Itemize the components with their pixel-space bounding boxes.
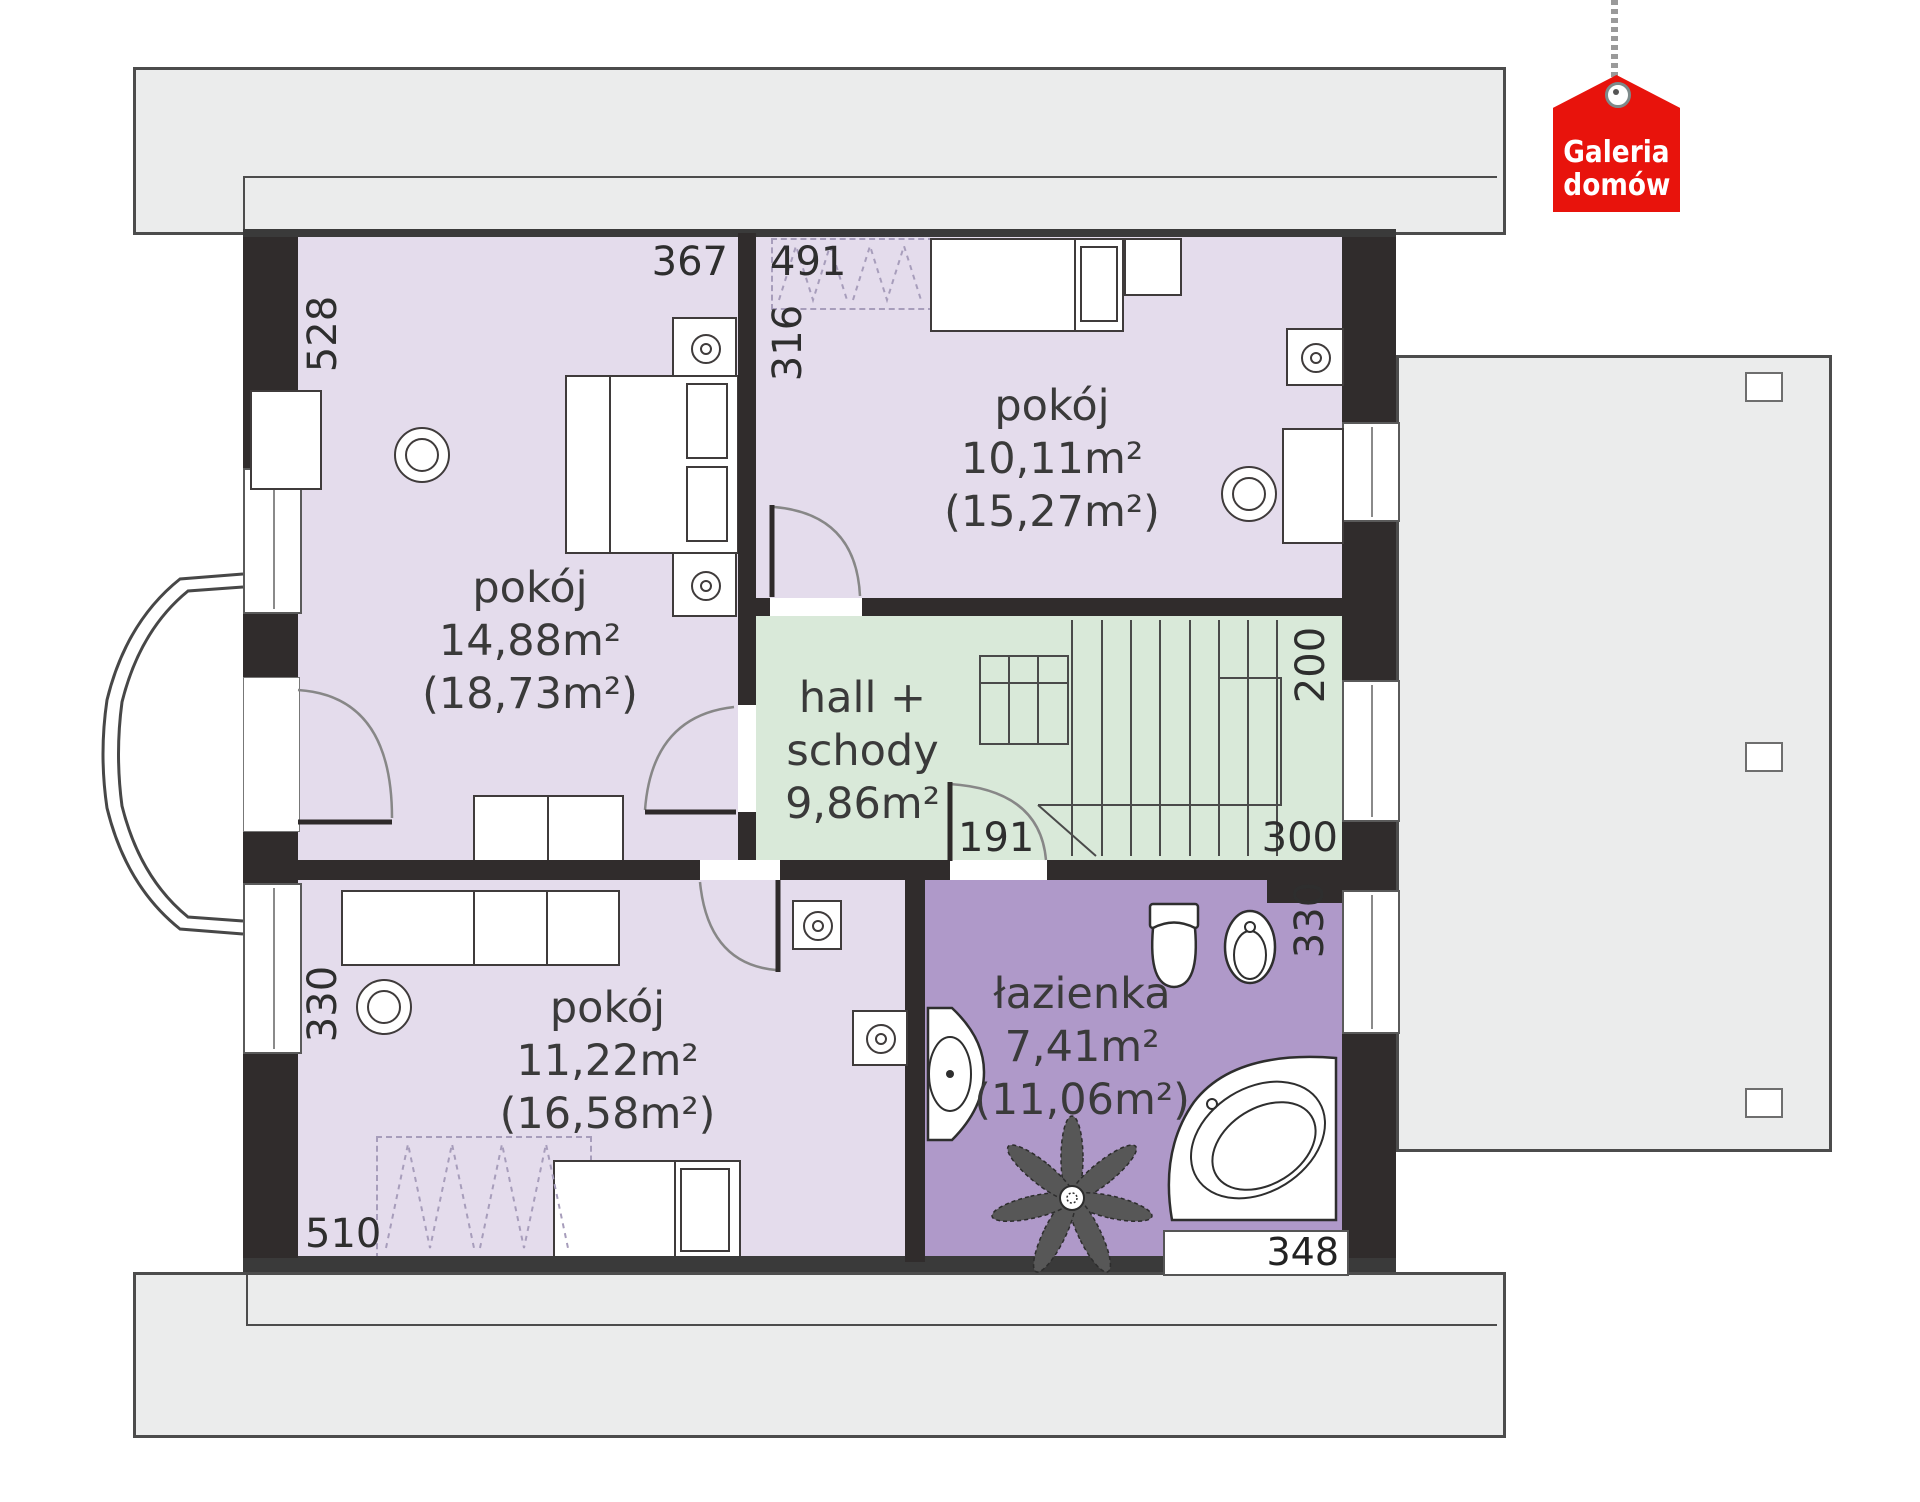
room-name: hall +: [740, 672, 985, 725]
doorway-bathroom: [950, 860, 1047, 880]
dimension-367: 367: [600, 240, 728, 284]
window-mullion: [1371, 895, 1373, 1029]
wall-lamp: [852, 1010, 908, 1066]
wall-bottom-right-corner: [1342, 1228, 1396, 1258]
room-area: 7,41m²: [922, 1021, 1242, 1074]
logo-hole-icon: [1605, 82, 1631, 108]
dresser-divider: [547, 797, 549, 862]
bed-fold-line: [674, 1162, 676, 1260]
room-area: 10,11m²: [902, 433, 1202, 486]
pillow: [680, 1168, 730, 1252]
dimension-200: 200: [1289, 620, 1333, 710]
roof-step-line-top-v: [243, 176, 245, 229]
room-area-gross: (18,73m²): [380, 668, 680, 721]
wall-left-2: [243, 610, 298, 677]
nightstand: [1124, 238, 1182, 296]
window-right-bathroom: [1342, 890, 1400, 1034]
dresser: [473, 795, 624, 864]
window-mullion: [273, 473, 275, 609]
room-name: łazienka: [922, 968, 1242, 1021]
wall-right-2: [1342, 518, 1396, 680]
desk: [250, 390, 322, 490]
floor-plan: 348: [0, 0, 1920, 1502]
room-area-gross: (16,58m²): [450, 1088, 765, 1141]
nightstand-lamp: [672, 552, 737, 617]
window-right-top: [1342, 422, 1400, 522]
roof-step-line-bottom-v: [246, 1272, 248, 1324]
dimension-316: 316: [766, 298, 810, 388]
bed-fold-line: [1074, 240, 1076, 330]
room-top-right-label: pokój 10,11m² (15,27m²): [902, 380, 1202, 539]
lamp-icon: [803, 911, 833, 941]
nightstand-lamp: [1286, 328, 1344, 386]
room-name: pokój: [380, 562, 680, 615]
wall-top: [243, 229, 1396, 237]
window-mullion: [1371, 427, 1373, 517]
wall-between-top-rooms: [738, 233, 756, 705]
wall-lamp: [792, 900, 842, 950]
lamp-icon: [866, 1024, 896, 1054]
nightstand-lamp: [672, 317, 737, 379]
pillow: [1080, 246, 1118, 322]
wall-hall-north: [862, 598, 1342, 616]
roof-overhang-bottom: [133, 1272, 1506, 1438]
room-area: 11,22m²: [450, 1035, 765, 1088]
lamp-dot: [700, 343, 712, 355]
hall-label: hall + schody 9,86m²: [740, 672, 985, 831]
room-top-left-label: pokój 14,88m² (18,73m²): [380, 562, 680, 721]
roof-step-line-bottom-h: [246, 1324, 1497, 1326]
lamp-dot: [1310, 352, 1322, 364]
single-bed: [553, 1160, 741, 1262]
terrace-post-bottom: [1745, 1088, 1783, 1118]
wall-right-3: [1342, 818, 1396, 890]
lamp-dot: [812, 920, 824, 932]
wardrobe-divider: [546, 892, 548, 964]
terrace-post-middle: [1745, 742, 1783, 772]
roof-step-line-top-h: [243, 176, 1497, 178]
dimension-528: 528: [301, 289, 345, 379]
roof-overhang-top: [133, 67, 1506, 235]
window-right-middle: [1342, 680, 1400, 822]
chair: [356, 979, 412, 1035]
logo-line1: Galeria: [1563, 136, 1669, 169]
double-bed: [565, 375, 739, 554]
wardrobe-unit: [341, 890, 620, 966]
terrace-post-top: [1745, 372, 1783, 402]
room-name: pokój: [902, 380, 1202, 433]
logo-line2: domów: [1563, 169, 1670, 202]
dimension-348: 348: [1266, 1230, 1339, 1274]
chair: [394, 427, 450, 483]
bay-balcony-icon: [103, 574, 243, 934]
bed-fold-line: [609, 377, 611, 552]
room-area: 9,86m²: [740, 778, 985, 831]
logo-chain-icon: [1611, 0, 1618, 78]
window-mullion: [273, 888, 275, 1049]
room-area-gross: (15,27m²): [902, 486, 1202, 539]
wall-middle-2: [780, 860, 950, 880]
pillow: [686, 383, 728, 459]
wall-bottom-left-corner: [243, 1228, 298, 1258]
room-name: pokój: [450, 982, 765, 1035]
dimension-491: 491: [770, 240, 900, 284]
balcony-door-opening: [243, 677, 300, 832]
doorway-bottom-left-room: [700, 860, 780, 880]
window-bathroom-bottom: 348: [1163, 1230, 1349, 1276]
dimension-191: 191: [958, 816, 1068, 860]
chair-inner: [1232, 477, 1266, 511]
bathroom-label: łazienka 7,41m² (11,06m²): [922, 968, 1242, 1127]
chair-inner: [367, 990, 401, 1024]
logo-hole-dot: [1613, 89, 1619, 95]
lamp-icon: [1301, 343, 1331, 373]
chair-inner: [405, 438, 439, 472]
lamp-dot: [875, 1033, 887, 1045]
single-bed: [930, 238, 1124, 332]
dimension-330-right: 330: [1288, 875, 1332, 965]
room-bottom-left-label: pokój 11,22m² (16,58m²): [450, 982, 765, 1141]
wardrobe-divider: [473, 892, 475, 964]
chair: [1221, 466, 1277, 522]
room-area-gross: (11,06m²): [922, 1074, 1242, 1127]
doorway-top-right-room: [770, 598, 862, 616]
window-left-bottom: [243, 883, 302, 1054]
dimension-330-left: 330: [301, 959, 345, 1049]
lamp-icon: [691, 334, 721, 364]
dimension-510: 510: [305, 1212, 425, 1256]
window-mullion: [1371, 685, 1373, 817]
room-name-2: schody: [740, 725, 985, 778]
wall-right-1: [1342, 229, 1396, 422]
wall-hall-north-jamb: [756, 598, 770, 616]
wall-middle-1: [298, 860, 700, 880]
desk: [1282, 428, 1344, 544]
wall-left-3: [243, 830, 298, 883]
dimension-300: 300: [1230, 816, 1338, 860]
pillow: [686, 466, 728, 542]
lamp-dot: [700, 580, 712, 592]
lamp-icon: [691, 571, 721, 601]
room-area: 14,88m²: [380, 615, 680, 668]
